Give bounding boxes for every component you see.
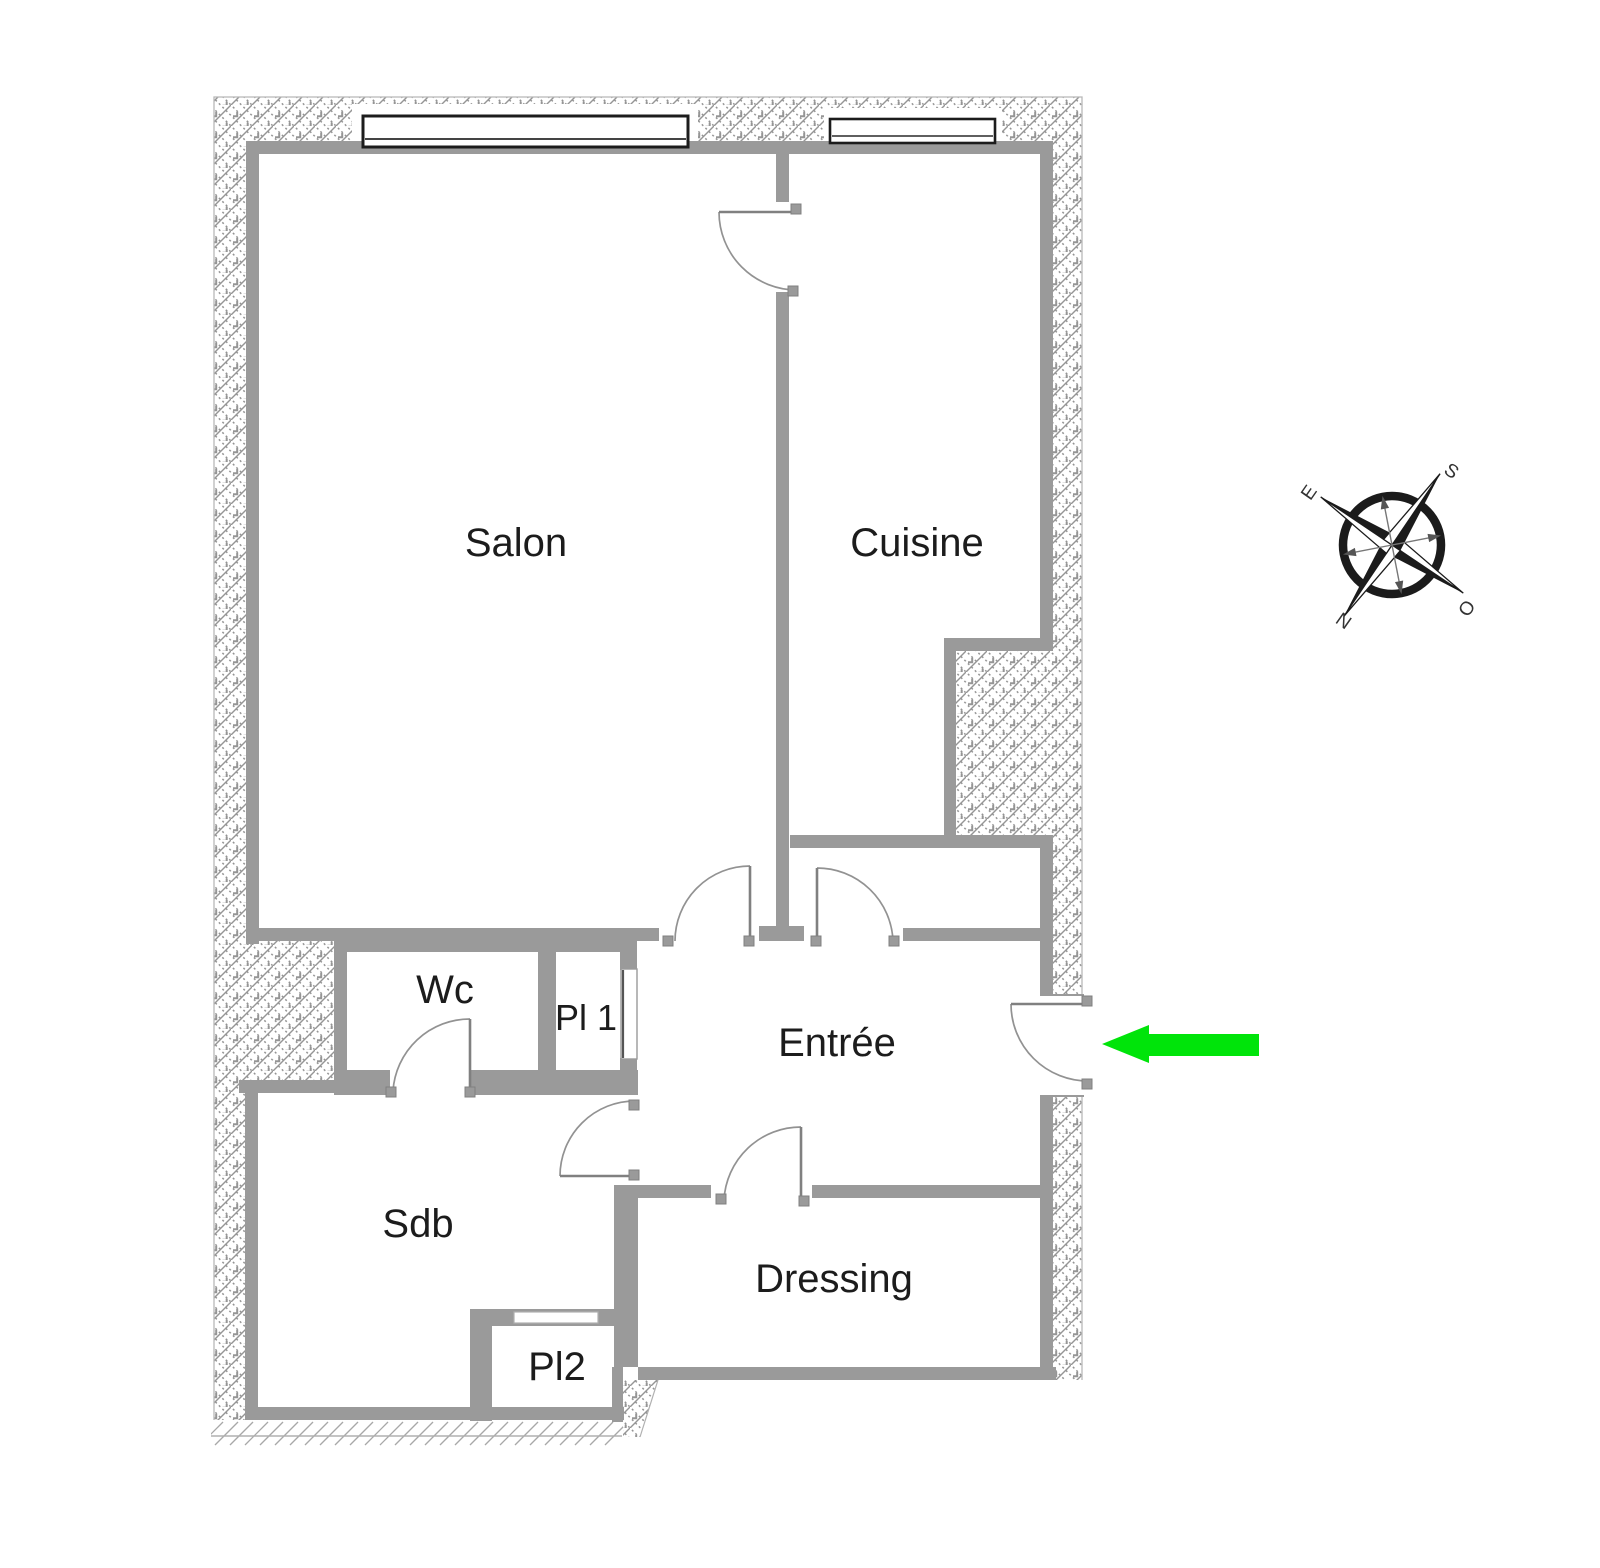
svg-text:Pl 1: Pl 1 — [555, 997, 617, 1038]
svg-text:Salon: Salon — [465, 521, 567, 565]
svg-text:Wc: Wc — [416, 968, 474, 1012]
svg-text:Entrée: Entrée — [778, 1021, 896, 1065]
svg-text:Dressing: Dressing — [755, 1257, 913, 1301]
svg-text:Sdb: Sdb — [382, 1202, 453, 1246]
svg-text:Pl2: Pl2 — [528, 1345, 586, 1389]
svg-text:Cuisine: Cuisine — [850, 521, 983, 565]
